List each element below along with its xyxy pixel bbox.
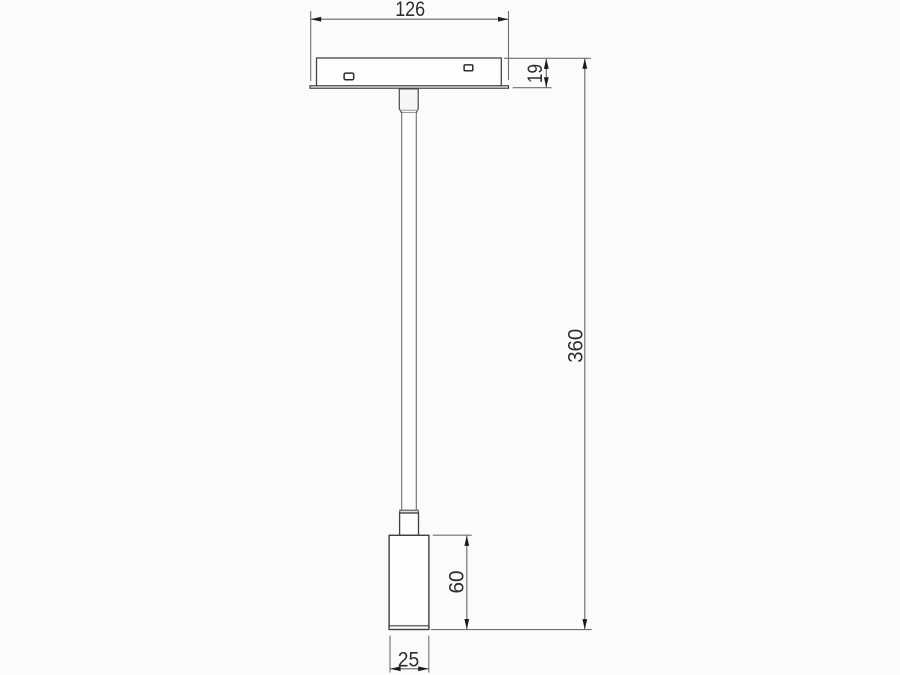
svg-text:19: 19 <box>524 64 547 83</box>
svg-text:126: 126 <box>395 0 425 21</box>
svg-text:360: 360 <box>565 329 588 363</box>
svg-text:60: 60 <box>445 571 468 594</box>
svg-text:25: 25 <box>398 649 420 672</box>
